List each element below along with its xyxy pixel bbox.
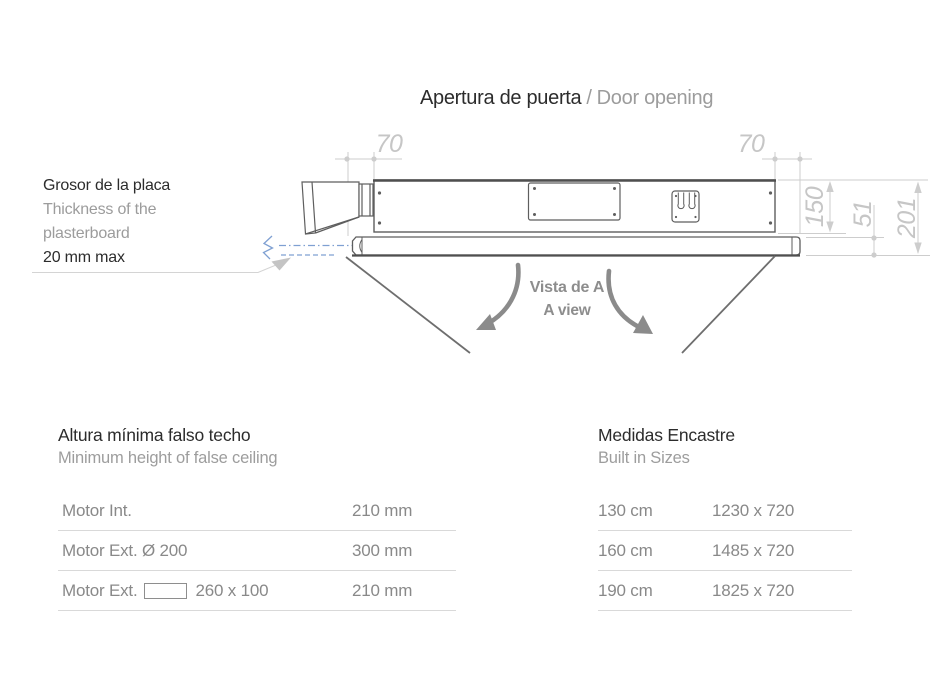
plasterboard-note-en-1: Thickness of the [43,198,170,222]
screw-dot [769,191,772,194]
screw-dot [675,216,677,218]
row-size: 160 cm [598,541,712,561]
screw-dot [378,191,381,194]
dim-dot [871,235,876,240]
row-size: 190 cm [598,581,712,601]
screw-dot [769,221,772,224]
false-ceiling-table-rows: Motor Int. 210 mm Motor Ext. Ø 200 300 m… [58,491,456,611]
row-dimensions: 1825 x 720 [712,581,852,601]
dim-arrow-down [826,222,833,233]
page-title-separator: / [586,87,591,109]
housing-box [374,180,775,232]
dim-label-201: 201 [893,198,921,239]
row-dimensions: 1230 x 720 [712,501,852,521]
motor-coupler [359,184,373,216]
dim-dot [371,156,376,161]
screw-dot [533,187,536,190]
plasterboard-max-value: 20 mm max [43,246,170,270]
screw-dot [613,187,616,190]
table-row: Motor Ext. Ø 200 300 mm [58,531,456,571]
view-a-label: Vista de A A view [497,276,637,322]
screw-dot [613,213,616,216]
row-label-text: Motor Int. [62,501,132,521]
false-ceiling-table: Altura mínima falso techo Minimum height… [58,424,456,611]
dim-dot [871,252,876,257]
dim-dot [797,156,802,161]
dim-label-150: 150 [801,186,829,227]
table-row: 160 cm 1485 x 720 [598,531,852,571]
page: { "title": {"es": "Apertura de puerta", … [0,0,950,700]
row-label: Motor Int. [58,501,352,521]
frame-bar-end-caps [360,237,792,255]
table-row: Motor Ext. 260 x 100 210 mm [58,571,456,611]
row-size: 130 cm [598,501,712,521]
built-in-sizes-table-title-en: Built in Sizes [598,447,852,470]
row-label-text: 260 x 100 [195,581,268,601]
row-value: 210 mm [352,581,456,601]
access-panel [529,183,621,220]
door-panel-left [346,257,470,353]
plasterboard-note: Grosor de la placa Thickness of the plas… [43,174,170,270]
dim-label-right-70: 70 [738,130,765,158]
table-row: 130 cm 1230 x 720 [598,491,852,531]
motor-housing [302,182,359,234]
view-a-label-es: Vista de A [497,276,637,299]
false-ceiling-table-title-en: Minimum height of false ceiling [58,447,456,470]
rectangle-duct-icon [144,583,187,599]
dim-label-51: 51 [849,201,877,228]
mounting-bracket [672,191,699,222]
built-in-sizes-table-title-es: Medidas Encastre [598,424,852,447]
row-value: 210 mm [352,501,456,521]
view-a-label-en: A view [497,299,637,322]
built-in-sizes-table: Medidas Encastre Built in Sizes 130 cm 1… [598,424,852,611]
built-in-sizes-table-rows: 130 cm 1230 x 720 160 cm 1485 x 720 190 … [598,491,852,611]
screws [378,187,772,225]
dim-dot [772,156,777,161]
row-label: Motor Ext. 260 x 100 [58,581,352,601]
page-title-es: Apertura de puerta [420,87,581,109]
screw-dot [675,195,677,197]
table-row: Motor Int. 210 mm [58,491,456,531]
row-label-text: Motor Ext. Ø 200 [62,541,187,561]
dim-arrow-up [826,181,833,192]
door-panel-right [682,256,775,353]
keyhole-slot [678,193,684,209]
row-label: Motor Ext. Ø 200 [58,541,352,561]
page-title: Apertura de puerta/Door opening [420,87,713,110]
frame-bar [353,237,801,255]
row-dimensions: 1485 x 720 [712,541,852,561]
motor-coupler-detail [362,184,370,216]
page-title-en: Door opening [597,87,714,109]
unit-drawing [302,180,800,256]
screw-dot [378,221,381,224]
plasterboard-note-title: Grosor de la placa [43,174,170,198]
false-ceiling-table-title-es: Altura mínima falso techo [58,424,456,447]
screw-dot [694,216,696,218]
dimension-markers [344,156,921,257]
table-row: 190 cm 1825 x 720 [598,571,852,611]
dim-arrow-up [914,182,921,194]
leader-arrowhead [272,258,292,271]
view-arrow-left-head [476,314,496,330]
keyhole-slot [689,193,695,209]
dim-label-left-70: 70 [376,130,403,158]
dimension-annotations [335,152,930,256]
screw-dot [694,195,696,197]
plasterboard-note-en-2: plasterboard [43,222,170,246]
break-symbol [264,236,273,259]
dim-arrow-down [914,243,921,255]
row-value: 300 mm [352,541,456,561]
motor-housing-detail [306,182,360,234]
row-label-text: Motor Ext. [62,581,137,601]
dim-dot [344,156,349,161]
screw-dot [533,213,536,216]
